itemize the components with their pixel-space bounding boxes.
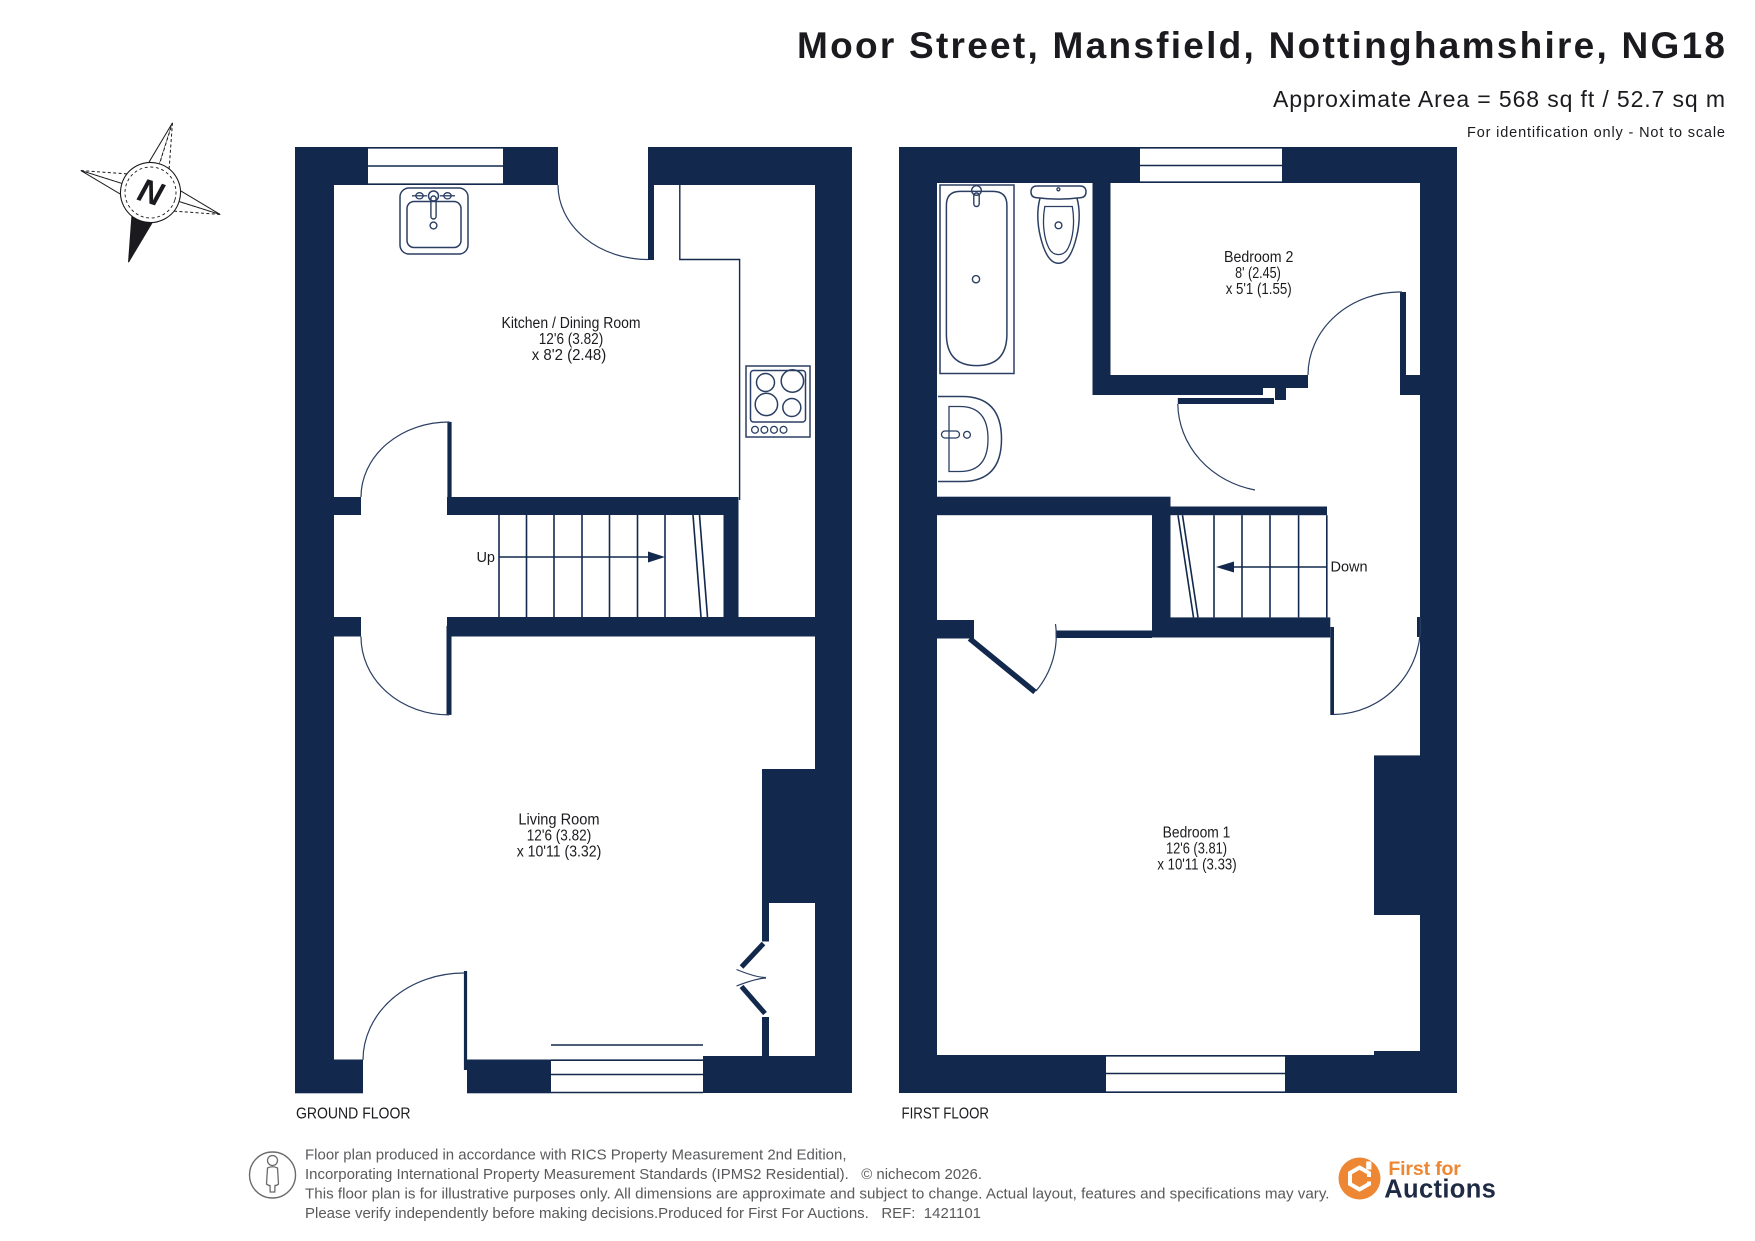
svg-text:Approximate Area = 568 sq ft /: Approximate Area = 568 sq ft / 52.7 sq m	[1273, 86, 1725, 112]
svg-text:FIRST FLOOR: FIRST FLOOR	[902, 1106, 990, 1123]
svg-text:12'6 (3.82): 12'6 (3.82)	[527, 828, 592, 845]
svg-text:Up: Up	[476, 550, 495, 566]
svg-text:x 10'11 (3.32): x 10'11 (3.32)	[517, 844, 602, 861]
svg-text:This floor plan is for illustr: This floor plan is for illustrative purp…	[305, 1186, 1330, 1203]
svg-text:12'6 (3.81): 12'6 (3.81)	[1166, 841, 1227, 858]
svg-text:x 10'11 (3.33): x 10'11 (3.33)	[1157, 857, 1236, 874]
svg-text:Kitchen / Dining Room: Kitchen / Dining Room	[502, 315, 641, 332]
svg-text:For identification only - Not: For identification only - Not to scale	[1467, 125, 1725, 141]
svg-text:Living Room: Living Room	[518, 812, 599, 829]
svg-text:Incorporating International Pr: Incorporating International Property Mea…	[305, 1166, 982, 1183]
svg-text:GROUND FLOOR: GROUND FLOOR	[296, 1106, 411, 1123]
svg-text:Bedroom 2: Bedroom 2	[1224, 249, 1293, 266]
svg-text:Please verify independently be: Please verify independently before makin…	[305, 1205, 981, 1222]
svg-text:x 5'1 (1.55): x 5'1 (1.55)	[1226, 281, 1292, 298]
svg-text:12'6 (3.82): 12'6 (3.82)	[539, 331, 604, 348]
svg-text:Floor plan produced in accorda: Floor plan produced in accordance with R…	[305, 1147, 847, 1164]
svg-text:Bedroom 1: Bedroom 1	[1163, 825, 1231, 842]
svg-text:x 8'2 (2.48): x 8'2 (2.48)	[532, 347, 607, 364]
svg-text:8' (2.45): 8' (2.45)	[1235, 265, 1281, 282]
svg-text:Auctions: Auctions	[1384, 1175, 1496, 1203]
svg-text:Down: Down	[1331, 560, 1368, 576]
svg-text:Moor Street, Mansfield, Nottin: Moor Street, Mansfield, Nottinghamshire,…	[797, 25, 1725, 66]
